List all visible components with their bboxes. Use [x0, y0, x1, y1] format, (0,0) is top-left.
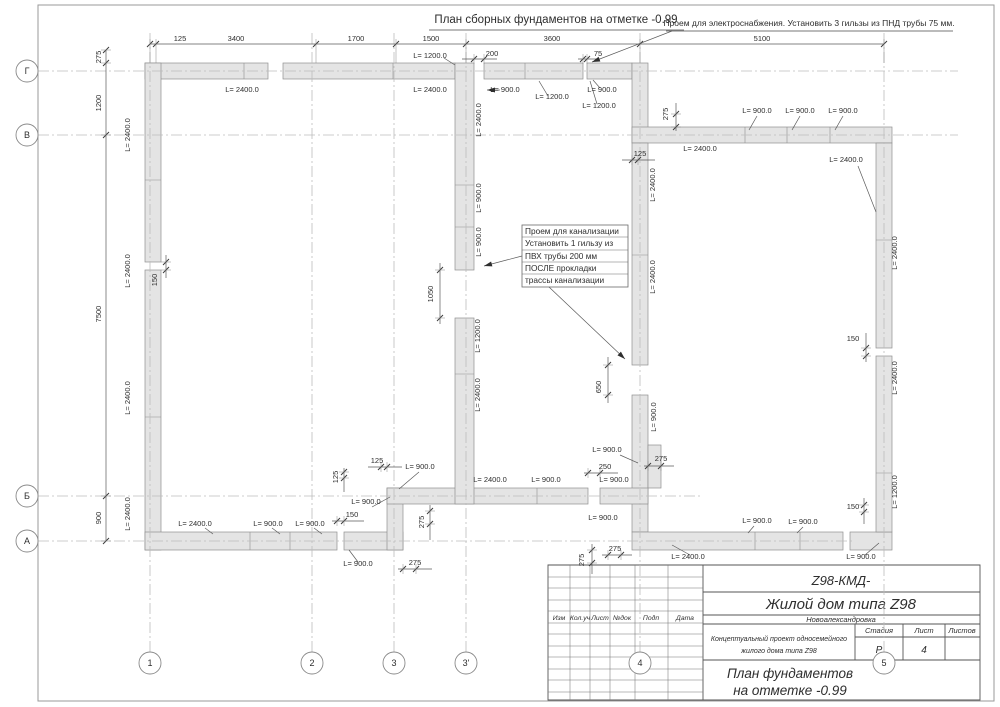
dim-label: 3600	[544, 34, 561, 43]
wall-segment	[455, 318, 474, 504]
dim-label: 150	[847, 334, 860, 343]
axis-label: 3	[391, 658, 396, 668]
wall-segment	[455, 63, 474, 270]
dim-label: L= 2400.0	[225, 85, 259, 94]
dim-label: 75	[594, 49, 602, 58]
dim-label: L= 2400.0	[829, 155, 863, 164]
dim-label: 275	[417, 516, 426, 529]
page-title: План сборных фундаментов на отметке -0.9…	[434, 14, 677, 26]
kanaliz-note-line: трассы канализации	[525, 275, 604, 285]
dim-label: 7500	[94, 306, 103, 323]
dim-label: L= 900.0	[742, 106, 771, 115]
wall-segment	[145, 270, 161, 550]
wall-segment	[145, 63, 161, 262]
dim-label: L= 900.0	[474, 183, 483, 212]
rev-header: Изм	[553, 615, 566, 622]
rev-header: Подп	[643, 614, 659, 622]
dim-label: 150	[346, 510, 359, 519]
dim-label: L= 2400.0	[890, 361, 899, 395]
dim-label: L= 900.0	[351, 497, 380, 506]
rev-header: Дата	[675, 615, 694, 622]
rev-header: №док	[613, 614, 632, 622]
object-name: Жилой дом типа Z98	[765, 596, 917, 613]
dim-label: L= 900.0	[474, 227, 483, 256]
axis-label: 5	[881, 658, 886, 668]
dim-label: 125	[371, 456, 384, 465]
axis-label: А	[24, 536, 30, 546]
electro-note: Проем для электроснабжения. Установить 3…	[663, 18, 954, 28]
axis-label: 2	[309, 658, 314, 668]
dim-label: L= 900.0	[846, 552, 875, 561]
dim-label: L= 900.0	[253, 519, 282, 528]
dim-label: L= 1200.0	[582, 101, 616, 110]
dim-label: 3400	[228, 34, 245, 43]
dim-label: 275	[609, 544, 622, 553]
dim-label: 1700	[348, 34, 365, 43]
dim-label: L= 900.0	[828, 106, 857, 115]
dim-label: L= 900.0	[742, 516, 771, 525]
dim-label: L= 2400.0	[890, 236, 899, 270]
dim-label: L= 2400.0	[123, 118, 132, 152]
dim-label: L= 2400.0	[474, 103, 483, 137]
object-location: Новоалександровка	[806, 615, 876, 624]
dim-label: L= 1200.0	[413, 51, 447, 60]
dim-label: L= 900.0	[785, 106, 814, 115]
dim-label: L= 2400.0	[178, 519, 212, 528]
dim-label: L= 900.0	[788, 517, 817, 526]
dim-label: L= 900.0	[490, 85, 519, 94]
dim-label: L= 2400.0	[413, 85, 447, 94]
dim-label: L= 1200.0	[890, 475, 899, 509]
dim-label: 125	[331, 471, 340, 484]
dim-label: L= 900.0	[531, 475, 560, 484]
axis-label: 3'	[463, 658, 470, 668]
dim-label: L= 2400.0	[683, 144, 717, 153]
dim-label: L= 900.0	[587, 85, 616, 94]
dim-label: 200	[486, 49, 499, 58]
dim-label: L= 2400.0	[473, 378, 482, 412]
dim-label: 650	[594, 381, 603, 394]
dim-label: L= 900.0	[295, 519, 324, 528]
dim-label: 275	[661, 108, 670, 121]
dim-label: L= 2400.0	[123, 381, 132, 415]
dim-label: 150	[150, 274, 159, 287]
wall-segment	[850, 532, 892, 550]
dim-label: 275	[94, 51, 103, 64]
axis-label: В	[24, 130, 30, 140]
sheets-header: Листов	[947, 626, 975, 635]
kanaliz-note-line: ПОСЛЕ прокладки	[525, 263, 597, 273]
stage-header: Стадия	[865, 626, 893, 635]
kanaliz-note: Проем для канализации Установить 1 гильз…	[522, 225, 628, 287]
dim-label: 275	[655, 454, 668, 463]
rev-header: Кол.уч	[570, 615, 591, 622]
wall-segment	[648, 445, 661, 488]
dim-label: 900	[94, 512, 103, 525]
dim-label: 250	[599, 462, 612, 471]
sheet-header: Лист	[913, 626, 933, 635]
axis-label: Б	[24, 491, 30, 501]
kanaliz-note-line: Установить 1 гильзу из	[525, 238, 613, 248]
dim-label: L= 900.0	[592, 445, 621, 454]
dim-label: 275	[577, 554, 586, 567]
dim-label: L= 2400.0	[648, 168, 657, 202]
project-name-line: Концептуальный проект односемейного	[711, 635, 847, 643]
dim-label: 1500	[423, 34, 440, 43]
drawing-title-line: План фундаментов	[727, 666, 853, 681]
axis-label: 4	[637, 658, 642, 668]
dim-label: L= 1200.0	[473, 319, 482, 353]
dim-label: 1200	[94, 95, 103, 112]
document-code: Z98-КМД-	[811, 573, 871, 588]
dim-label: 150	[847, 502, 860, 511]
dim-label: 275	[409, 558, 422, 567]
dim-label: 125	[634, 149, 647, 158]
project-name-line: жилого дома типа Z98	[740, 647, 817, 655]
drawing-title-line: на отметке -0.99	[733, 683, 847, 698]
dim-label: L= 900.0	[649, 402, 658, 431]
dim-label: L= 2400.0	[473, 475, 507, 484]
dim-label: L= 900.0	[599, 475, 628, 484]
foundation-plan-drawing: План сборных фундаментов на отметке -0.9…	[0, 0, 1000, 707]
dim-label: L= 2400.0	[123, 497, 132, 531]
dim-label: L= 2400.0	[648, 260, 657, 294]
dim-label: L= 900.0	[405, 462, 434, 471]
dim-label: L= 1200.0	[535, 92, 569, 101]
sheet-value: 4	[921, 645, 927, 656]
dim-label: L= 900.0	[588, 513, 617, 522]
axis-label: Г	[25, 66, 30, 76]
axis-label: 1	[147, 658, 152, 668]
dim-label: 5100	[754, 34, 771, 43]
dim-label: 125	[174, 34, 187, 43]
dim-label: L= 2400.0	[123, 254, 132, 288]
dim-label: L= 900.0	[343, 559, 372, 568]
rev-header: Лист	[590, 615, 609, 622]
kanaliz-note-line: ПВХ трубы 200 мм	[525, 251, 597, 261]
kanaliz-note-line: Проем для канализации	[525, 226, 619, 236]
dim-label: 1050	[426, 286, 435, 303]
dim-label: L= 2400.0	[671, 552, 705, 561]
